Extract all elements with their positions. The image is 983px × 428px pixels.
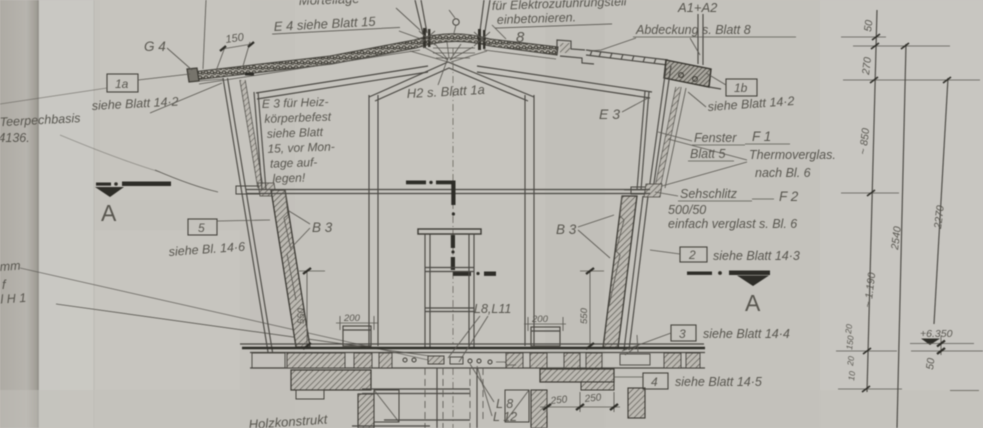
svg-text:270: 270 — [860, 56, 874, 76]
svg-text:einfach verglast s. Bl. 6: einfach verglast s. Bl. 6 — [668, 217, 797, 231]
svg-text:siehe Blatt: siehe Blatt — [267, 125, 324, 141]
svg-text:körperbefest: körperbefest — [264, 110, 332, 126]
svg-text:15, vor Mon-: 15, vor Mon- — [267, 139, 335, 155]
svg-text:550: 550 — [579, 307, 590, 324]
svg-text:L 8: L 8 — [496, 397, 513, 411]
svg-text:2: 2 — [688, 248, 696, 262]
svg-text:50: 50 — [924, 357, 937, 370]
svg-text:E 3 für Heiz-: E 3 für Heiz- — [262, 95, 329, 111]
svg-text:550: 550 — [296, 307, 307, 324]
svg-text:A: A — [101, 200, 117, 226]
svg-text:A: A — [745, 290, 761, 316]
svg-text:150: 150 — [844, 335, 856, 351]
svg-text:1a: 1a — [115, 77, 129, 91]
svg-text:mm: mm — [0, 259, 21, 274]
svg-text:20: 20 — [845, 355, 856, 367]
svg-text:L8,L11: L8,L11 — [474, 302, 511, 316]
svg-text:1b: 1b — [734, 81, 748, 95]
svg-text:Abdeckung s. Blatt 8: Abdeckung s. Blatt 8 — [635, 23, 751, 37]
svg-text:siehe Blatt 14·3: siehe Blatt 14·3 — [713, 249, 800, 263]
svg-text:einbetonieren.: einbetonieren. — [497, 10, 577, 27]
svg-text:B 3: B 3 — [556, 222, 577, 237]
svg-text:A1+A2: A1+A2 — [677, 0, 718, 15]
svg-text:Blatt 5: Blatt 5 — [690, 147, 725, 161]
svg-text:Fenster: Fenster — [694, 131, 737, 145]
svg-text:500/50: 500/50 — [668, 203, 706, 217]
svg-text:20: 20 — [843, 323, 854, 335]
svg-text:siehe Blatt 14·4: siehe Blatt 14·4 — [703, 327, 790, 341]
svg-text:G 4: G 4 — [144, 39, 166, 54]
svg-text:3: 3 — [679, 327, 686, 341]
svg-text:4: 4 — [651, 375, 658, 389]
svg-text:5: 5 — [198, 221, 205, 235]
svg-text:F 2: F 2 — [779, 189, 799, 204]
svg-text:n 4136.: n 4136. — [0, 131, 30, 145]
svg-text:200: 200 — [343, 313, 361, 324]
svg-text:Sehschlitz: Sehschlitz — [680, 187, 738, 201]
svg-text:10: 10 — [846, 370, 857, 381]
svg-text:250: 250 — [549, 394, 568, 407]
svg-text:+6.350: +6.350 — [920, 328, 953, 340]
svg-text:Thermoverglas.: Thermoverglas. — [749, 148, 836, 162]
svg-text:200: 200 — [531, 314, 549, 325]
svg-text:8: 8 — [516, 29, 525, 46]
svg-text:F 1: F 1 — [752, 129, 771, 144]
svg-text:L 12: L 12 — [493, 410, 517, 424]
svg-text:legen!: legen! — [272, 171, 306, 186]
svg-text:tage auf-: tage auf- — [270, 155, 318, 171]
svg-text:B 3: B 3 — [312, 220, 333, 235]
svg-text:E 3: E 3 — [599, 106, 620, 122]
svg-text:nach Bl. 6: nach Bl. 6 — [755, 166, 811, 180]
svg-text:siehe Blatt 14·5: siehe Blatt 14·5 — [675, 375, 762, 389]
svg-text:250: 250 — [583, 392, 602, 405]
svg-text:50: 50 — [862, 19, 875, 32]
